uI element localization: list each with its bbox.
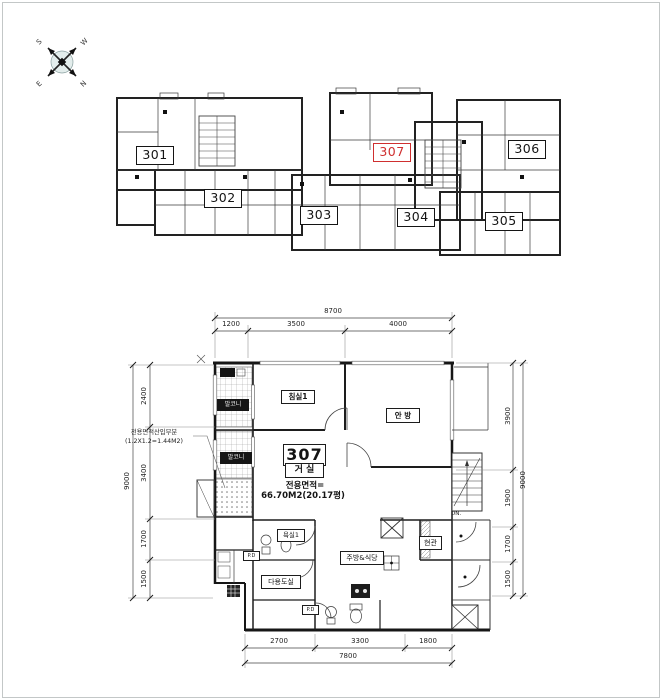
dim-left-seg3: 1700 <box>139 519 149 559</box>
stairs-dn-label: DN. <box>451 512 461 518</box>
dim-bottom-seg2: 3300 <box>340 638 380 645</box>
compass-rose-icon <box>48 48 76 76</box>
dim-left-seg4: 1500 <box>139 559 149 599</box>
room-label-utility: 다용도실 <box>261 575 301 589</box>
dim-top-seg1: 1200 <box>211 321 251 328</box>
dim-top-seg2: 3500 <box>276 321 316 328</box>
dim-right-total: 9000 <box>518 460 528 500</box>
room-label-bedroom1: 침실1 <box>281 390 315 404</box>
pd-label-2: P.D <box>302 605 319 615</box>
dim-right-seg2: 1900 <box>503 478 513 518</box>
area-value: 66.70M2(20.17평) <box>248 492 358 501</box>
floor-plan-sheet: S W E N 301 302 303 304 305 306 307 침실1 … <box>0 0 662 700</box>
dim-bottom-seg3: 1800 <box>408 638 448 645</box>
room-label-living: 거 실 <box>285 463 324 478</box>
dim-top-total: 8700 <box>313 308 353 315</box>
room-label-bath1: 욕실1 <box>277 529 305 542</box>
dim-left-total: 9000 <box>122 461 132 501</box>
plan-linework <box>0 0 662 700</box>
unit-label-304: 304 <box>397 208 435 227</box>
dim-bottom-seg1: 2700 <box>259 638 299 645</box>
annotation-line1: 전용면적산입부분 <box>114 428 194 437</box>
room-label-kitchen-dining: 주방&식당 <box>340 551 384 565</box>
unit-label-307-highlight: 307 <box>373 143 411 162</box>
room-label-balcony-2: 발코니 <box>220 452 252 464</box>
dim-left-seg1: 2400 <box>139 376 149 416</box>
unit-label-303: 303 <box>300 206 338 225</box>
unit-label-302: 302 <box>204 189 242 208</box>
unit-label-301: 301 <box>136 146 174 165</box>
dim-right-seg1: 3900 <box>503 396 513 436</box>
dim-left-seg2: 3400 <box>139 453 149 493</box>
room-label-master-bedroom: 안 방 <box>386 408 420 423</box>
dim-top-seg3: 4000 <box>378 321 418 328</box>
unit-label-305: 305 <box>485 212 523 231</box>
room-label-entry: 현관 <box>419 536 442 550</box>
area-calc-annotation: 전용면적산입부분 (1.2X1.2=1.44M2) <box>114 428 194 446</box>
dim-right-seg4: 1500 <box>503 559 513 599</box>
room-label-balcony-1: 발코니 <box>217 399 249 411</box>
dim-right-seg3: 1700 <box>503 524 513 564</box>
unit-label-306: 306 <box>508 140 546 159</box>
pd-label-1: P.D <box>243 551 260 561</box>
area-label: 전용면적= <box>265 482 345 491</box>
annotation-line2: (1.2X1.2=1.44M2) <box>114 437 194 446</box>
dim-bottom-total: 7800 <box>328 653 368 660</box>
